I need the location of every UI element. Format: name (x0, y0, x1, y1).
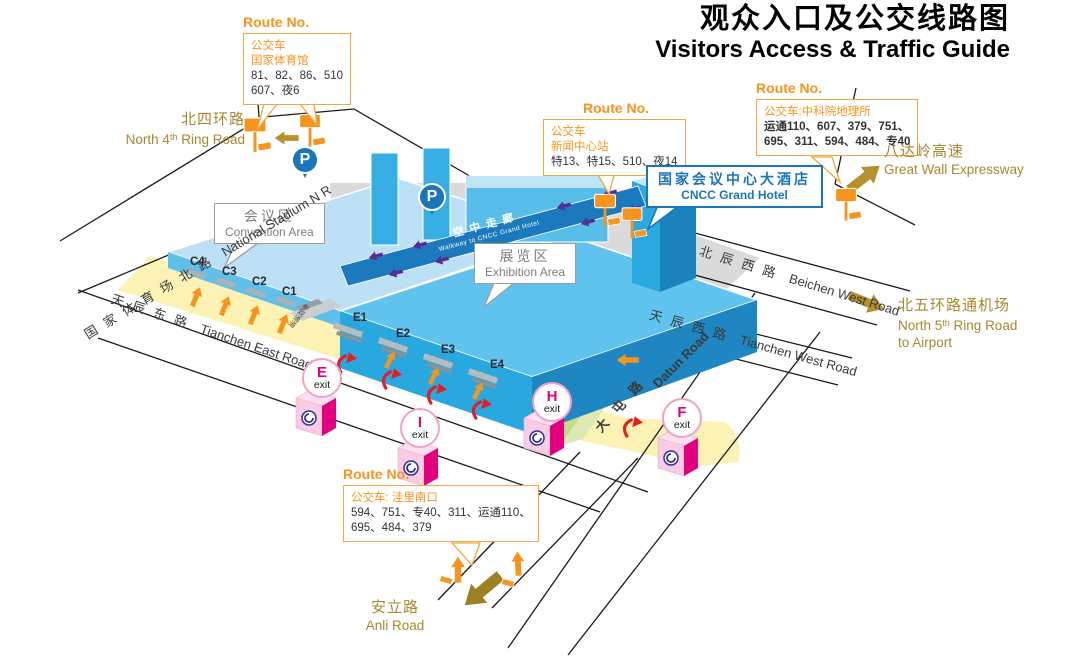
road-north5th-en2: to Airport (898, 334, 1017, 351)
traffic-guide-map: 观众入口及公交线路图 Visitors Access & Traffic Gui… (0, 0, 1080, 658)
road-expressway-en: Great Wall Expressway (884, 161, 1024, 178)
bus-stop-name: 公交车: 洼里南口 (351, 491, 531, 506)
cncc-hotel-bubble: 国家会议中心大酒店 CNCC Grand Hotel (646, 165, 823, 208)
bus-label: 公交车 (551, 125, 678, 140)
bus-stop-icon (244, 118, 272, 152)
entrance-c2: C2 (252, 276, 267, 288)
entrance-c3: C3 (222, 266, 237, 278)
exit-letter: I (402, 415, 438, 430)
tower-1 (371, 153, 398, 245)
route-box-title: Route No. (756, 80, 918, 97)
exit-letter: H (534, 389, 570, 404)
entrance-e1: E1 (353, 312, 367, 324)
bus-stop-name: 新闻中心站 (551, 140, 678, 155)
orange-arrow-icon (451, 557, 465, 583)
bus-route-numbers: 607、夜6 (251, 84, 343, 99)
road-north4th-zh: 北四环路 (95, 110, 245, 129)
metro-exit-i-badge: I exit (400, 408, 440, 448)
road-label-north4th: 北四环路 North 4th Ring Road (95, 110, 245, 148)
bus-stop-name: 国家体育馆 (251, 54, 343, 69)
page-title-en: Visitors Access & Traffic Guide (655, 36, 1010, 64)
ordinal-suffix: th (942, 318, 950, 328)
metro-exit-f-badge: F exit (662, 398, 702, 438)
entrance-e4: E4 (490, 359, 504, 371)
route-box-body: 公交车 国家体育馆 81、82、86、510 607、夜6 (243, 33, 351, 105)
road-anli-zh: 安立路 (345, 598, 445, 617)
exit-word: exit (304, 380, 340, 391)
parking-label: P (292, 148, 318, 172)
entrance-c4: C4 (190, 256, 205, 268)
page-title-zh: 观众入口及公交线路图 (655, 2, 1010, 36)
bus-route-numbers: 695、484、379 (351, 521, 531, 536)
road-label-expressway: 八达岭高速 Great Wall Expressway (884, 142, 1024, 178)
road-north4th-en: North 4th Ring Road (95, 129, 245, 148)
bus-banner-icon (439, 576, 452, 585)
page-title: 观众入口及公交线路图 Visitors Access & Traffic Gui… (655, 2, 1010, 64)
road-name-text: Ring Road (177, 132, 245, 147)
route-box-title: Route No. (243, 14, 351, 31)
bus-route-numbers: 81、82、86、510 (251, 69, 343, 84)
route-box-wali: Route No. 公交车: 洼里南口 594、751、专40、311、运通11… (343, 466, 539, 542)
road-anli-en: Anli Road (345, 617, 445, 634)
exhibition-area-bubble: 展览区 Exhibition Area (474, 243, 576, 284)
route-box-title: Route No. (583, 100, 686, 117)
bus-stop-name: 公交车:中科院地理所 (764, 105, 910, 120)
back-block-roof (466, 176, 608, 188)
route-box-body: 公交车: 洼里南口 594、751、专40、311、运通110、 695、484… (343, 485, 539, 542)
orange-arrow-icon (511, 551, 525, 576)
exit-word: exit (664, 420, 700, 431)
entrance-e3: E3 (441, 344, 455, 356)
road-north5th-zh: 北五环路通机场 (898, 296, 1017, 315)
bus-route-numbers: 运通110、607、379、751、 (764, 120, 910, 135)
bus-stop-icon (836, 188, 862, 220)
exhibition-area-en: Exhibition Area (485, 265, 565, 280)
parking-label: P (419, 185, 445, 209)
bus-banner-icon (501, 579, 514, 588)
road-north5th-en: North 5th Ring Road (898, 315, 1017, 334)
road-name-text: Ring Road (950, 318, 1018, 333)
metro-exit-e-badge: E exit (302, 358, 342, 398)
exit-word: exit (534, 404, 570, 415)
entrance-e2: E2 (396, 328, 410, 340)
gold-arrow-icon (275, 132, 299, 145)
route-box-title: Route No. (343, 466, 539, 483)
cncc-hotel-en: CNCC Grand Hotel (658, 188, 811, 203)
road-expressway-zh: 八达岭高速 (884, 142, 1024, 161)
exit-letter: E (304, 365, 340, 380)
road-name-text: North 4 (126, 132, 170, 147)
road-label-anli: 安立路 Anli Road (345, 598, 445, 634)
route-box-stadium: Route No. 公交车 国家体育馆 81、82、86、510 607、夜6 (243, 14, 351, 105)
exit-letter: F (664, 405, 700, 420)
metro-exit-h-badge: H exit (532, 382, 572, 422)
exit-word: exit (402, 430, 438, 441)
road-name-text: North 5 (898, 318, 942, 333)
entrance-c1: C1 (282, 286, 297, 298)
bus-label: 公交车 (251, 39, 343, 54)
exhibition-area-zh: 展览区 (485, 247, 565, 265)
bus-route-numbers: 594、751、专40、311、运通110、 (351, 506, 531, 521)
cncc-hotel-zh: 国家会议中心大酒店 (658, 170, 811, 188)
road-label-north5th: 北五环路通机场 North 5th Ring Road to Airport (898, 296, 1017, 351)
